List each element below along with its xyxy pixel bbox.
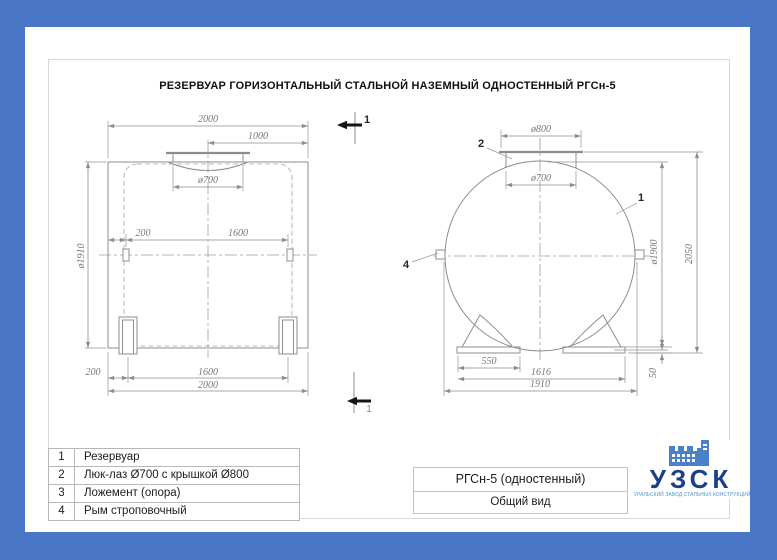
part-number: 4 [49,503,75,520]
end-view: ø800 ø700 ø1900 2050 50 550 1616 1910 2 [403,124,703,396]
lifting-lug-right [287,249,293,261]
section-arrow-top-icon [337,121,347,129]
callout-lug: 4 [403,259,410,271]
section-label-top: 1 [364,114,370,126]
dim-manhole-dia-side: ø700 [197,175,218,186]
part-number: 1 [49,449,75,466]
dim-cover-dia: ø800 [530,124,551,135]
dim-length-top: 2000 [198,114,218,125]
table-row: 1 Резервуар [49,449,299,467]
part-name: Ложемент (опора) [75,485,299,502]
parts-table: 1 Резервуар 2 Люк-лаз Ø700 с крышкой Ø80… [48,448,300,521]
view-name: Общий вид [414,492,627,513]
uzsk-logo: УЗСК УРАЛЬСКИЙ ЗАВОД СТАЛЬНЫХ КОНСТРУКЦИ… [631,440,747,498]
dim-support-width: 550 [482,356,497,367]
dim-overall-width: 1910 [530,379,550,390]
logo-tagline: УРАЛЬСКИЙ ЗАВОД СТАЛЬНЫХ КОНСТРУКЦИЙ [634,492,744,498]
saddle-support-right [571,315,621,347]
side-view: 2000 1000 ø700 200 1600 ø1910 200 1600 2… [76,114,317,396]
dim-shell-dia-side: ø1910 [76,244,87,270]
table-row: 2 Люк-лаз Ø700 с крышкой Ø800 [49,467,299,485]
part-name: Люк-лаз Ø700 с крышкой Ø800 [75,467,299,484]
dim-length-bottom: 2000 [198,380,218,391]
table-row: 4 Рым строповочный [49,503,299,520]
logo-abbr: УЗСК [631,467,751,491]
section-arrow-bottom-icon [347,397,357,405]
section-marks: 1 1 [337,112,372,415]
dim-manhole-to-end: 1000 [248,131,268,142]
lifting-lug-left [123,249,129,261]
part-name: Рым строповочный [75,503,299,520]
part-name: Резервуар [75,449,299,466]
dim-overall-height: 2050 [684,244,695,264]
lifting-lug-end-right [635,250,644,259]
title-block: РГСн-5 (одностенный) Общий вид [413,467,628,514]
dim-support-spacing: 1600 [198,367,218,378]
dim-bottom-gap: 50 [648,368,659,378]
part-number: 2 [49,467,75,484]
blueprint-page: РЕЗЕРВУАР ГОРИЗОНТАЛЬНЫЙ СТАЛЬНОЙ НАЗЕМН… [0,0,777,560]
section-label-bottom: 1 [366,404,372,415]
callout-tank: 1 [638,192,644,204]
dim-lug-offset: 200 [136,228,151,239]
dim-lug-spacing: 1600 [228,228,248,239]
callout-manhole: 2 [478,138,484,150]
dim-manhole-dia-end: ø700 [530,173,551,184]
dim-support-spacing-end: 1616 [531,367,551,378]
model-name: РГСн-5 (одностенный) [414,468,627,492]
part-number: 3 [49,485,75,502]
dim-support-offset: 200 [86,367,101,378]
table-row: 3 Ложемент (опора) [49,485,299,503]
dim-shell-dia-end: ø1900 [649,240,660,266]
lifting-lug-end-left [436,250,445,259]
